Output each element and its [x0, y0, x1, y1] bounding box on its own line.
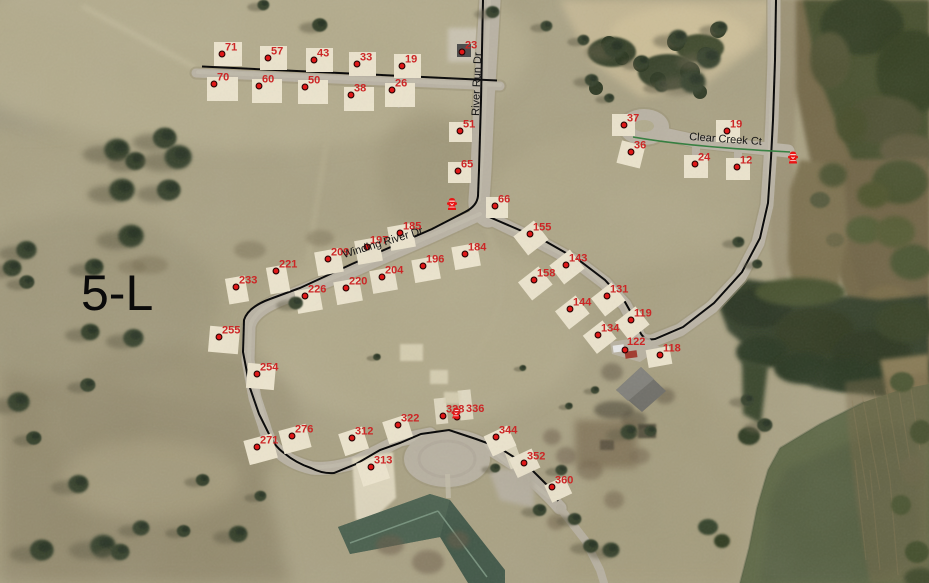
svg-text:328: 328: [446, 404, 464, 416]
svg-text:155: 155: [533, 222, 551, 234]
svg-text:26: 26: [395, 78, 407, 90]
svg-text:255: 255: [222, 325, 240, 337]
svg-text:221: 221: [279, 259, 297, 271]
svg-text:271: 271: [260, 435, 278, 447]
svg-text:37: 37: [627, 113, 639, 125]
svg-text:119: 119: [634, 308, 652, 320]
svg-text:143: 143: [569, 253, 587, 265]
svg-text:36: 36: [634, 140, 646, 152]
svg-text:131: 131: [610, 284, 628, 296]
svg-text:122: 122: [627, 336, 645, 348]
svg-text:158: 158: [537, 268, 555, 280]
svg-text:38: 38: [354, 83, 366, 95]
svg-text:71: 71: [225, 42, 237, 54]
svg-text:184: 184: [468, 242, 487, 254]
svg-text:344: 344: [499, 425, 518, 437]
svg-text:19: 19: [730, 119, 742, 131]
svg-text:196: 196: [426, 254, 444, 266]
svg-text:51: 51: [463, 119, 475, 131]
svg-text:66: 66: [498, 194, 510, 206]
svg-text:19: 19: [405, 54, 417, 66]
svg-text:322: 322: [401, 413, 419, 425]
svg-text:12: 12: [740, 155, 752, 167]
svg-text:70: 70: [217, 72, 229, 84]
svg-text:226: 226: [308, 284, 326, 296]
svg-text:336: 336: [466, 403, 484, 415]
svg-text:65: 65: [461, 159, 473, 171]
svg-text:24: 24: [698, 152, 711, 164]
svg-text:254: 254: [260, 362, 279, 374]
svg-text:118: 118: [663, 343, 681, 355]
svg-text:33: 33: [360, 52, 372, 64]
svg-text:144: 144: [573, 297, 592, 309]
svg-text:313: 313: [374, 455, 392, 467]
svg-text:50: 50: [308, 75, 320, 87]
svg-text:23: 23: [465, 40, 477, 52]
svg-text:57: 57: [271, 46, 283, 58]
svg-text:352: 352: [527, 451, 545, 463]
svg-text:River Run Dr: River Run Dr: [470, 52, 484, 116]
svg-text:276: 276: [295, 424, 313, 436]
svg-text:134: 134: [601, 323, 620, 335]
svg-text:5-L: 5-L: [81, 265, 153, 321]
svg-text:312: 312: [355, 426, 373, 438]
svg-text:233: 233: [239, 275, 257, 287]
svg-text:43: 43: [317, 48, 329, 60]
svg-text:220: 220: [349, 276, 367, 288]
svg-text:60: 60: [262, 74, 274, 86]
svg-text:360: 360: [555, 475, 573, 487]
svg-text:204: 204: [385, 265, 404, 277]
